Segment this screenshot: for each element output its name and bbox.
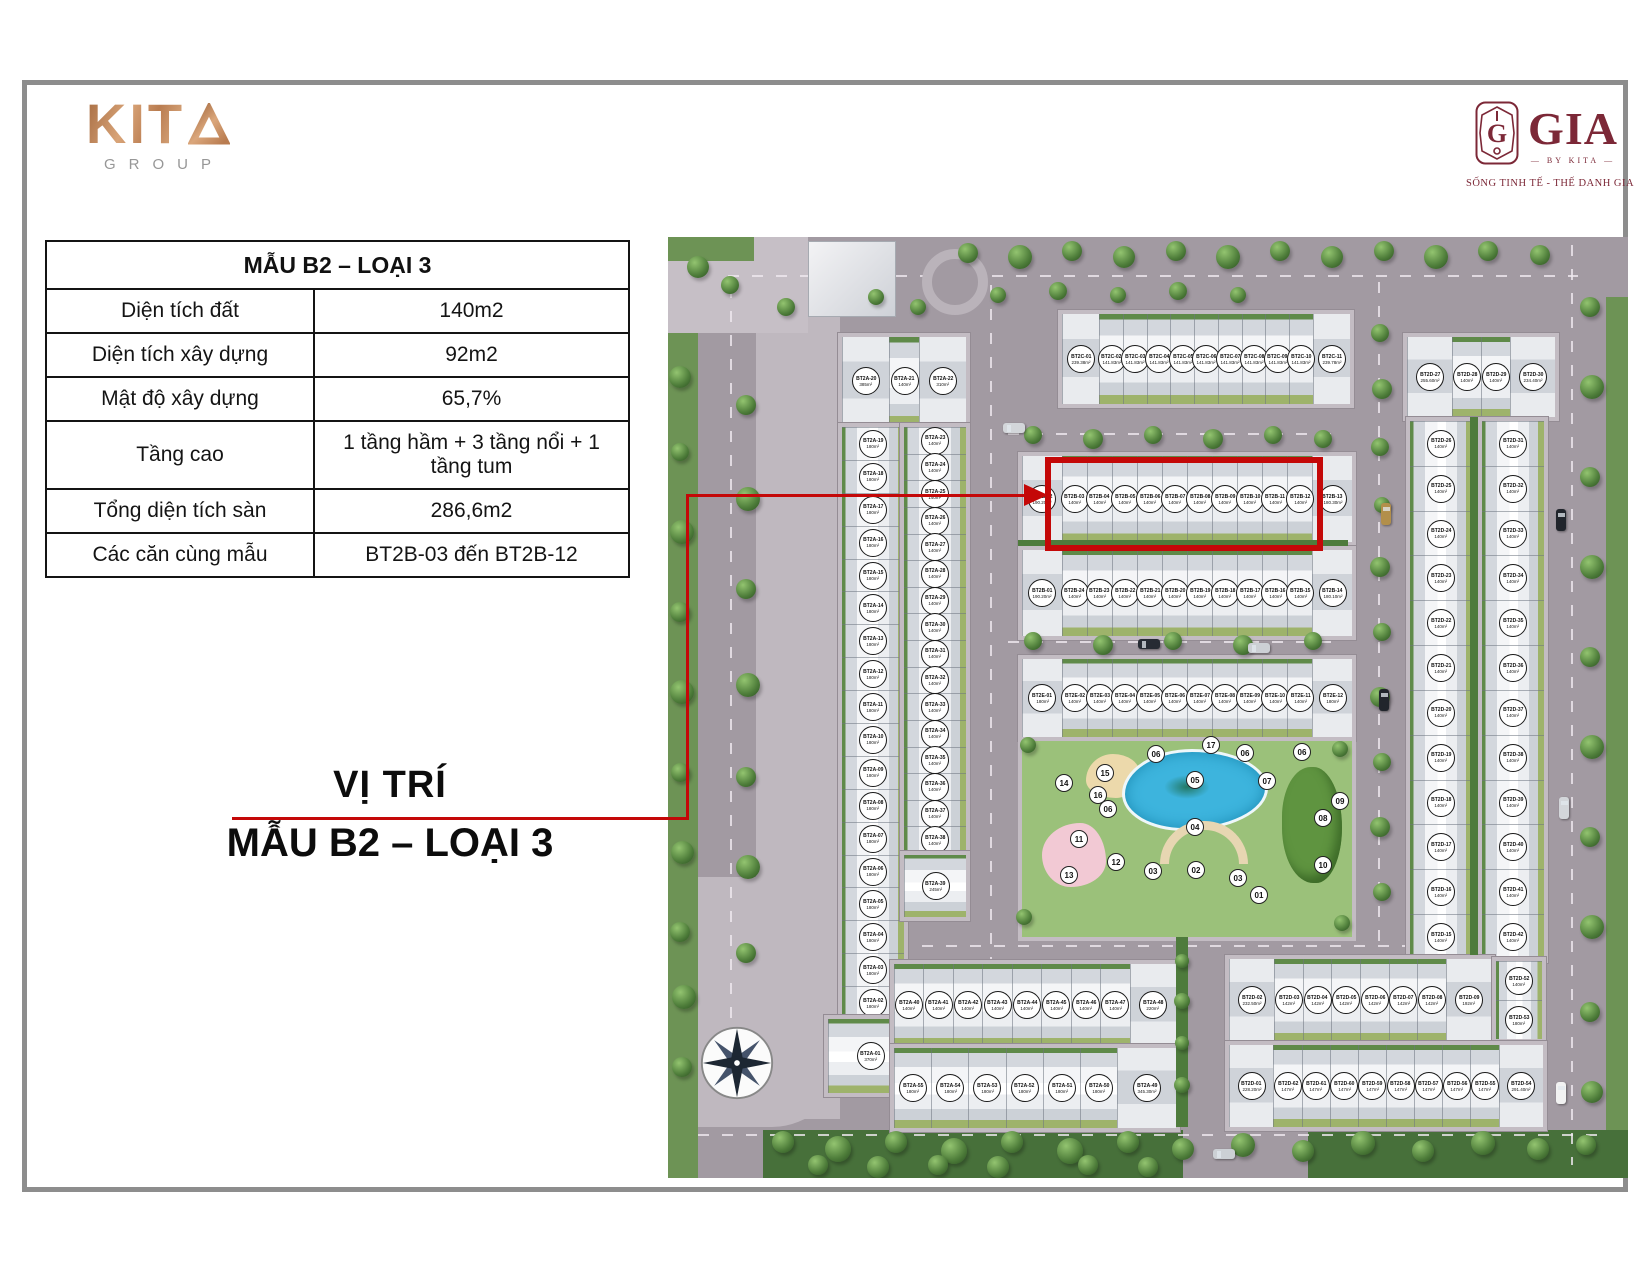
plot-area: 180m² <box>1055 1089 1068 1094</box>
tree-icon <box>1374 241 1394 261</box>
plot-id: BT2B-22 <box>1115 588 1135 593</box>
tree-icon <box>1024 632 1042 650</box>
plot-area: 141.83m² <box>1173 360 1192 365</box>
compass-icon <box>699 1025 775 1106</box>
tree-icon <box>1373 883 1391 901</box>
tree-icon <box>1530 245 1550 265</box>
amenity-marker: 07 <box>1258 772 1276 790</box>
plot-label-badge: BT2A-15180m² <box>859 562 887 590</box>
plot-area: 180m² <box>867 478 880 483</box>
master-plan-map: BT2A-20385m²BT2A-21140m²BT2A-22310m² BT2… <box>668 237 1628 1178</box>
plot-label-badge: BT2D-08142m² <box>1418 986 1446 1014</box>
tree-icon <box>808 1155 828 1175</box>
amenity-marker: 06 <box>1236 744 1254 762</box>
plot-id: BT2D-23 <box>1431 573 1451 578</box>
plot-id: BT2E-04 <box>1115 693 1135 698</box>
plot-label-badge: BT2A-53180m² <box>973 1074 1001 1102</box>
plot-unit: BT2D-22140m² <box>1410 600 1472 645</box>
plot-label-badge: BT2A-10180m² <box>859 726 887 754</box>
plot-unit: BT2A-52180m² <box>1006 1048 1043 1128</box>
plot-unit: BT2B-21140m² <box>1137 550 1162 636</box>
plot-area: 180m² <box>867 872 880 877</box>
plot-area: 140m² <box>1169 594 1182 599</box>
plot-label-badge: BT2A-51180m² <box>1048 1074 1076 1102</box>
plot-area: 140m² <box>1219 699 1232 704</box>
plot-unit: BT2A-31140m² <box>904 640 966 667</box>
plot-area: 140m² <box>1244 699 1257 704</box>
plot-id: BT2C-08 <box>1244 354 1264 359</box>
plot-area: 140m² <box>1294 699 1307 704</box>
plot-area: 140m² <box>1435 489 1448 494</box>
plot-id: BT2A-39 <box>925 881 945 886</box>
car-icon <box>1003 423 1025 433</box>
plot-area: 140m² <box>1435 938 1448 943</box>
road-center-line <box>1008 433 1338 435</box>
plot-label-badge: BT2D-02232.50m² <box>1238 986 1266 1014</box>
location-label-line1: VỊ TRÍ <box>220 764 560 807</box>
plot-area: 140m² <box>929 575 942 580</box>
plot-unit: BT2C-06141.83m² <box>1194 314 1218 404</box>
plot-area: 180m² <box>867 839 880 844</box>
plot-label-badge: BT2D-60147m² <box>1330 1072 1358 1100</box>
plot-id: BT2A-42 <box>958 1000 978 1005</box>
plot-unit: BT2D-28140m² <box>1452 337 1481 417</box>
plot-area: 140m² <box>1507 893 1520 898</box>
plot-label-badge: BT2A-43140m² <box>984 991 1012 1019</box>
car-icon <box>1556 1082 1566 1104</box>
plot-label-badge: BT2E-09140m² <box>1236 684 1264 712</box>
plot-unit: BT2A-38140m² <box>904 826 966 853</box>
plot-unit: BT2A-17180m² <box>842 493 904 526</box>
kita-wordmark: KIT <box>86 96 185 152</box>
plot-unit: BT2E-09140m² <box>1237 659 1262 737</box>
plot-label-badge: BT2A-20385m² <box>852 367 880 395</box>
plot-area: 245m² <box>929 887 942 892</box>
plot-area: 140m² <box>1435 714 1448 719</box>
plot-label-badge: BT2B-23140m² <box>1086 579 1114 607</box>
plot-id: BT2A-35 <box>925 755 945 760</box>
tree-icon <box>1581 1081 1603 1103</box>
plot-label-badge: BT2A-50180m² <box>1085 1074 1113 1102</box>
plot-label-badge: BT2A-06180m² <box>859 858 887 886</box>
plot-area: 141.83m² <box>1150 360 1169 365</box>
plot-id: BT2A-48 <box>1143 1000 1163 1005</box>
tree-icon <box>1049 282 1067 300</box>
plot-id: BT2C-11 <box>1322 354 1342 359</box>
tree-icon <box>1172 1138 1194 1160</box>
tree-icon <box>1264 426 1282 444</box>
amenity-marker: 12 <box>1107 853 1125 871</box>
amenity-marker: 03 <box>1229 869 1247 887</box>
plot-label-badge: BT2D-35140m² <box>1499 609 1527 637</box>
plot-area: 192m² <box>1463 1001 1476 1006</box>
plot-label-badge: BT2C-10141.83m² <box>1287 345 1315 373</box>
plot-unit: BT2B-15140m² <box>1287 550 1312 636</box>
plot-label-badge: BT2D-42140m² <box>1499 923 1527 951</box>
plot-unit: BT2B-20140m² <box>1162 550 1187 636</box>
plot-id: BT2B-20 <box>1165 588 1185 593</box>
spec-table-title: MẪU B2 – LOẠI 3 <box>46 241 629 289</box>
plot-id: BT2D-52 <box>1509 976 1529 981</box>
plot-id: BT2D-27 <box>1420 372 1440 377</box>
plot-area: 239.38m² <box>1072 360 1091 365</box>
plot-label-badge: BT2D-54291.40m² <box>1507 1072 1535 1100</box>
spec-value: 140m2 <box>314 289 629 333</box>
plot-id: BT2C-06 <box>1196 354 1216 359</box>
plot-area: 180.30m² <box>1323 500 1342 505</box>
plot-label-badge: BT2B-01190.20m² <box>1028 579 1056 607</box>
plot-id: BT2D-29 <box>1486 372 1506 377</box>
plot-area: 142m² <box>1311 1001 1324 1006</box>
plot-label-badge: BT2A-31140m² <box>921 640 949 668</box>
tree-icon <box>777 298 795 316</box>
plot-unit: BT2A-54180m² <box>931 1048 968 1128</box>
tree-icon <box>958 243 978 263</box>
plot-label-badge: BT2D-22140m² <box>1427 609 1455 637</box>
plot-label-badge: BT2A-11180m² <box>859 693 887 721</box>
plot-label-badge: BT2D-27255.60m² <box>1416 363 1444 391</box>
plot-area: 141.83m² <box>1292 360 1311 365</box>
amenity-marker: 06 <box>1099 800 1117 818</box>
plot-id: BT2A-55 <box>903 1083 923 1088</box>
plot-area: 147m² <box>1450 1087 1463 1092</box>
plot-label-badge: BT2A-07180m² <box>859 825 887 853</box>
tree-icon <box>1174 993 1190 1009</box>
plot-label-badge: BT2A-30140m² <box>921 613 949 641</box>
plot-id: BT2A-02 <box>863 998 883 1003</box>
plot-area: 140m² <box>1194 594 1207 599</box>
plot-unit: BT2A-55180m² <box>894 1048 931 1128</box>
plot-label-badge: BT2A-16180m² <box>859 529 887 557</box>
plot-id: BT2A-33 <box>925 702 945 707</box>
plot-unit: BT2C-10141.83m² <box>1289 314 1313 404</box>
tree-icon <box>1174 1077 1190 1093</box>
tree-icon <box>670 680 694 704</box>
tree-icon <box>736 943 756 963</box>
plot-unit: BT2D-16140m² <box>1410 869 1472 914</box>
plot-id: BT2D-05 <box>1336 995 1356 1000</box>
plot-area: 180m² <box>867 675 880 680</box>
tree-icon <box>1372 379 1392 399</box>
plot-area: 140m² <box>962 1006 975 1011</box>
spec-value: 65,7% <box>314 377 629 421</box>
plot-label-badge: BT2D-30234.40m² <box>1519 363 1547 391</box>
spec-value: 286,6m2 <box>314 489 629 533</box>
plot-unit: BT2A-12180m² <box>842 657 904 690</box>
tree-icon <box>1270 241 1290 261</box>
plot-id: BT2D-53 <box>1509 1015 1529 1020</box>
plot-area: 140m² <box>1269 699 1282 704</box>
plot-area: 180m² <box>1326 699 1339 704</box>
plot-area: 140m² <box>929 681 942 686</box>
plot-area: 147m² <box>1282 1087 1295 1092</box>
plot-id: BT2E-03 <box>1090 693 1110 698</box>
plot-unit: BT2A-30140m² <box>904 613 966 640</box>
plot-id: BT2D-22 <box>1431 618 1451 623</box>
highlight-box <box>1045 457 1323 551</box>
tree-icon <box>1083 429 1103 449</box>
plot-label-badge: BT2D-39140m² <box>1499 789 1527 817</box>
plot-area: 140m² <box>1068 594 1081 599</box>
block-bt2a-east-column: BT2A-23140m²BT2A-24140m²BT2A-25140m²BT2A… <box>900 423 970 857</box>
plot-id: BT2E-09 <box>1240 693 1260 698</box>
plot-id: BT2A-46 <box>1076 1000 1096 1005</box>
plot-area: 385m² <box>860 382 873 387</box>
plot-id: BT2D-41 <box>1503 887 1523 892</box>
car-icon <box>1379 689 1389 711</box>
tree-icon <box>1216 245 1240 269</box>
plot-unit: BT2A-09180m² <box>842 756 904 789</box>
plot-id: BT2C-03 <box>1125 354 1145 359</box>
tree-icon <box>1412 1140 1434 1162</box>
plot-area: 147m² <box>1479 1087 1492 1092</box>
plot-area: 142m² <box>1340 1001 1353 1006</box>
plot-id: BT2C-04 <box>1149 354 1169 359</box>
plot-unit: BT2A-27140m² <box>904 534 966 561</box>
plot-area: 140m² <box>1507 489 1520 494</box>
plot-area: 140m² <box>929 548 942 553</box>
tree-icon <box>1527 1138 1549 1160</box>
spec-label: Tầng cao <box>46 421 314 489</box>
tree-icon <box>736 395 756 415</box>
plot-area: 140m² <box>1109 1006 1122 1011</box>
plot-unit: BT2A-04180m² <box>842 920 904 953</box>
tree-icon <box>1292 1140 1314 1162</box>
tree-icon <box>1175 1036 1189 1050</box>
tree-icon <box>1351 1131 1375 1155</box>
plot-id: BT2B-13 <box>1323 494 1343 499</box>
plot-label-badge: BT2A-38140m² <box>921 826 949 854</box>
plot-label-badge: BT2D-59147m² <box>1358 1072 1386 1100</box>
plot-area: 180m² <box>907 1089 920 1094</box>
plot-id: BT2C-10 <box>1291 354 1311 359</box>
plot-area: 180m² <box>867 741 880 746</box>
plot-area: 140m² <box>1435 803 1448 808</box>
plot-label-badge: BT2D-31140m² <box>1499 430 1527 458</box>
plot-id: BT2E-08 <box>1215 693 1235 698</box>
plot-label-badge: BT2A-37140m² <box>921 800 949 828</box>
plot-unit: BT2E-03140m² <box>1087 659 1112 737</box>
plot-label-badge: BT2A-13180m² <box>859 627 887 655</box>
plot-label-badge: BT2E-10140m² <box>1261 684 1289 712</box>
plot-id: BT2E-11 <box>1291 693 1311 698</box>
tree-icon <box>1144 426 1162 444</box>
plot-area: 345.30m² <box>1138 1089 1157 1094</box>
plot-unit: BT2D-01228.20m² <box>1229 1045 1273 1127</box>
plot-area: 140m² <box>929 788 942 793</box>
plot-unit: BT2A-28140m² <box>904 560 966 587</box>
plot-area: 140m² <box>1507 445 1520 450</box>
plot-area: 140m² <box>1513 982 1526 987</box>
plot-area: 228.20m² <box>1242 1087 1261 1092</box>
plot-area: 140m² <box>1294 594 1307 599</box>
plot-label-badge: BT2D-38140m² <box>1499 744 1527 772</box>
plot-label-badge: BT2E-01180m² <box>1028 684 1056 712</box>
car-icon <box>1138 639 1160 649</box>
plot-id: BT2E-07 <box>1190 693 1210 698</box>
plot-label-badge: BT2D-33140m² <box>1499 520 1527 548</box>
block-bt2d-bottom-south-row: BT2D-01228.20m²BT2D-62147m²BT2D-61147m²B… <box>1225 1041 1547 1131</box>
plot-id: BT2D-58 <box>1390 1081 1410 1086</box>
tree-icon <box>772 1131 794 1153</box>
plot-area: 147m² <box>1366 1087 1379 1092</box>
amenity-marker: 06 <box>1293 743 1311 761</box>
plot-area: 140m² <box>1435 669 1448 674</box>
car-icon <box>1556 509 1566 531</box>
plot-area: 232.50m² <box>1243 1001 1262 1006</box>
amenity-marker: 01 <box>1250 886 1268 904</box>
plot-unit: BT2D-41140m² <box>1482 869 1544 914</box>
plot-unit: BT2D-08142m² <box>1417 959 1446 1041</box>
car-icon <box>1248 643 1270 653</box>
plot-unit: BT2C-05141.83m² <box>1170 314 1194 404</box>
plot-area: 147m² <box>1394 1087 1407 1092</box>
plot-label-badge: BT2D-29140m² <box>1482 363 1510 391</box>
plot-unit: BT2C-07141.83m² <box>1218 314 1242 404</box>
tree-icon <box>1424 245 1448 269</box>
block-bt2c-row: BT2C-01239.38m²BT2C-02141.83m²BT2C-03141… <box>1058 310 1354 408</box>
plot-unit: BT2A-06180m² <box>842 855 904 888</box>
plot-unit: BT2E-06140m² <box>1162 659 1187 737</box>
tree-icon <box>1580 297 1600 317</box>
leader-arrowhead-icon <box>1024 484 1048 506</box>
plot-area: 140m² <box>929 468 942 473</box>
plot-unit: BT2A-29140m² <box>904 587 966 614</box>
plot-id: BT2C-02 <box>1102 354 1122 359</box>
plot-unit: BT2E-01180m² <box>1022 659 1062 737</box>
plot-area: 140m² <box>1194 699 1207 704</box>
plot-unit: BT2B-23140m² <box>1087 550 1112 636</box>
plot-id: BT2D-17 <box>1431 842 1451 847</box>
plot-id: BT2A-45 <box>1046 1000 1066 1005</box>
plot-unit: BT2A-50180m² <box>1080 1048 1117 1128</box>
tree-icon <box>1113 246 1135 268</box>
plot-unit: BT2D-60147m² <box>1330 1045 1358 1127</box>
plot-area: 141.83m² <box>1126 360 1145 365</box>
plot-area: 142m² <box>1283 1001 1296 1006</box>
tree-icon <box>868 289 884 305</box>
plot-label-badge: BT2D-05142m² <box>1332 986 1360 1014</box>
tree-icon <box>670 922 690 942</box>
block-bt2a-39-corner: BT2A-39245m² <box>900 851 970 921</box>
plot-id: BT2E-12 <box>1323 693 1343 698</box>
plot-area: 140m² <box>1507 669 1520 674</box>
plot-area: 140m² <box>1507 624 1520 629</box>
plot-id: BT2D-42 <box>1503 932 1523 937</box>
gia-by-kita-label: — BY KITA — <box>1528 156 1618 165</box>
plot-id: BT2D-06 <box>1365 995 1385 1000</box>
plot-label-badge: BT2D-15140m² <box>1427 923 1455 951</box>
plot-label-badge: BT2A-21140m² <box>891 367 919 395</box>
spec-table-row: Các căn cùng mẫuBT2B-03 đến BT2B-12 <box>46 533 629 577</box>
plot-unit: BT2A-34140m² <box>904 720 966 747</box>
plot-label-badge: BT2A-26140m² <box>921 507 949 535</box>
car-icon <box>1381 503 1391 525</box>
plot-unit: BT2A-35140m² <box>904 747 966 774</box>
plot-area: 310m² <box>937 382 950 387</box>
plot-id: BT2A-21 <box>894 376 914 381</box>
plot-label-badge: BT2B-24140m² <box>1061 579 1089 607</box>
plot-unit: BT2A-37140m² <box>904 800 966 827</box>
tree-icon <box>736 855 760 879</box>
plot-id: BT2A-04 <box>863 932 883 937</box>
plot-area: 140m² <box>1489 378 1502 383</box>
amenity-marker: 08 <box>1314 809 1332 827</box>
spec-table: MẪU B2 – LOẠI 3 Diện tích đất140m2Diện t… <box>45 240 630 578</box>
plot-area: 140m² <box>1435 579 1448 584</box>
plot-unit: BT2D-59147m² <box>1358 1045 1386 1127</box>
plot-id: BT2A-03 <box>863 965 883 970</box>
plot-unit: BT2C-04141.83m² <box>1147 314 1171 404</box>
plot-unit: BT2D-09192m² <box>1446 959 1491 1041</box>
tree-icon <box>736 673 760 697</box>
plot-unit: BT2A-42140m² <box>953 964 982 1046</box>
plot-id: BT2A-14 <box>863 603 883 608</box>
amenity-marker: 04 <box>1186 818 1204 836</box>
plot-area: 140m² <box>929 521 942 526</box>
tree-icon <box>1580 1002 1600 1022</box>
plot-area: 140m² <box>1079 1006 1092 1011</box>
tree-icon <box>736 579 756 599</box>
plot-label-badge: BT2E-04140m² <box>1111 684 1139 712</box>
plot-label-badge: BT2A-35140m² <box>921 746 949 774</box>
plot-label-badge: BT2E-02140m² <box>1061 684 1089 712</box>
plot-id: BT2A-51 <box>1052 1083 1072 1088</box>
plot-id: BT2A-52 <box>1015 1083 1035 1088</box>
plot-area: 180m² <box>867 576 880 581</box>
plot-label-badge: BT2D-26140m² <box>1427 430 1455 458</box>
tree-icon <box>1314 430 1332 448</box>
spec-label: Diện tích đất <box>46 289 314 333</box>
tree-icon <box>1580 827 1600 847</box>
plot-unit: BT2A-14180m² <box>842 591 904 624</box>
plot-label-badge: BT2D-17140m² <box>1427 833 1455 861</box>
plot-area: 180m² <box>1036 699 1049 704</box>
plot-unit: BT2A-33140m² <box>904 693 966 720</box>
plot-id: BT2A-15 <box>863 571 883 576</box>
block-bt2a-bottom-south-row: BT2A-55180m²BT2A-54180m²BT2A-53180m²BT2A… <box>890 1044 1180 1132</box>
spec-table-body: Diện tích đất140m2Diện tích xây dựng92m2… <box>46 289 629 577</box>
spec-table-row: Diện tích xây dựng92m2 <box>46 333 629 377</box>
plot-area: 140m² <box>1435 624 1448 629</box>
plot-label-badge: BT2D-58147m² <box>1387 1072 1415 1100</box>
plot-area: 140m² <box>929 601 942 606</box>
tree-icon <box>1024 426 1042 444</box>
plot-unit: BT2A-53180m² <box>968 1048 1005 1128</box>
plot-unit: BT2C-09141.83m² <box>1265 314 1289 404</box>
plot-label-badge: BT2A-32140m² <box>921 666 949 694</box>
plot-label-badge: BT2D-23140m² <box>1427 564 1455 592</box>
block-bt2d-east-column: BT2D-31140m²BT2D-32140m²BT2D-33140m²BT2D… <box>1478 417 1548 963</box>
plot-unit: BT2A-40140m² <box>894 964 923 1046</box>
plot-unit: BT2A-44140m² <box>1012 964 1041 1046</box>
plot-area: 140m² <box>929 814 942 819</box>
leader-line-horizontal-upper <box>686 494 1026 497</box>
tree-icon <box>1166 241 1186 261</box>
plot-area: 140m² <box>1143 699 1156 704</box>
plot-area: 141.83m² <box>1221 360 1240 365</box>
plot-unit: BT2D-26140m² <box>1410 421 1472 466</box>
plot-id: BT2E-02 <box>1065 693 1085 698</box>
plot-label-badge: BT2A-54180m² <box>936 1074 964 1102</box>
plot-id: BT2D-01 <box>1242 1081 1262 1086</box>
plot-label-badge: BT2A-05180m² <box>859 890 887 918</box>
plot-label-badge: BT2A-24140m² <box>921 453 949 481</box>
plot-area: 180m² <box>1018 1089 1031 1094</box>
tree-icon <box>1580 735 1604 759</box>
plot-area: 140m² <box>932 1006 945 1011</box>
plot-unit: BT2D-24140m² <box>1410 511 1472 556</box>
